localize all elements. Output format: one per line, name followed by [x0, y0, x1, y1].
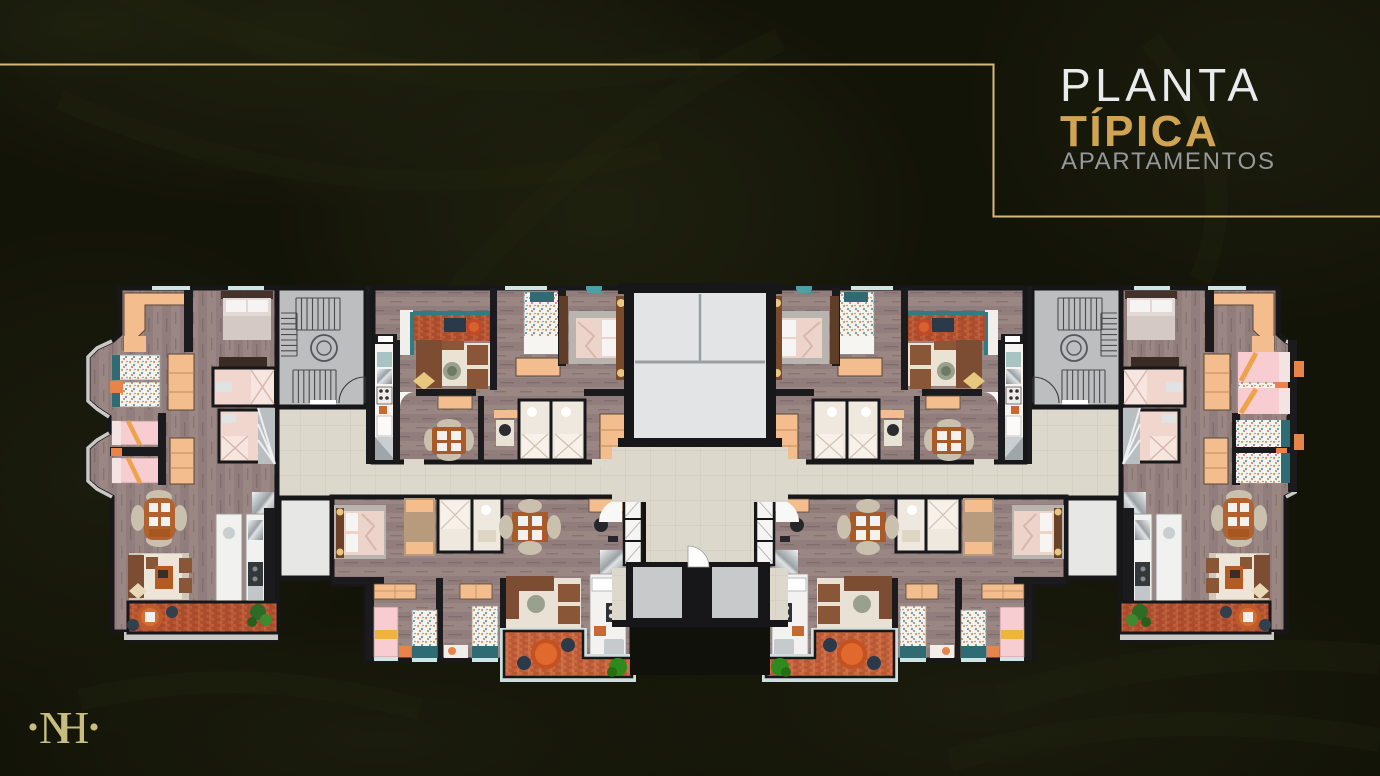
svg-text:APARTAMENTOS: APARTAMENTOS — [1061, 148, 1276, 175]
svg-text:PLANTA: PLANTA — [1060, 59, 1263, 111]
svg-text:H: H — [56, 702, 89, 753]
